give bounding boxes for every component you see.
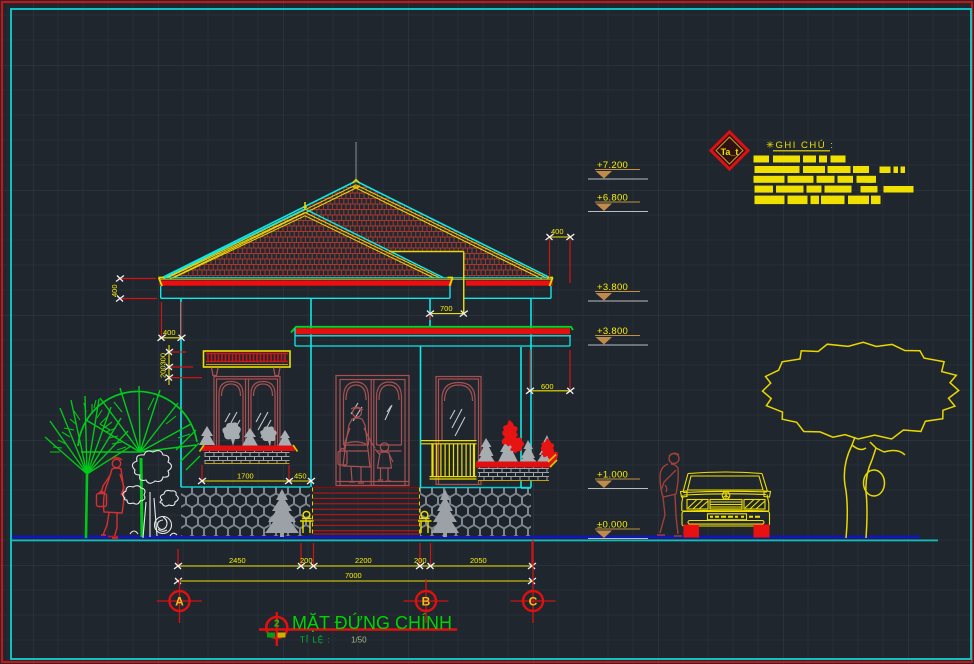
svg-text:400: 400 [110, 284, 119, 297]
svg-text:7000: 7000 [345, 571, 362, 580]
svg-text:200300: 200300 [159, 353, 168, 378]
svg-text:2450: 2450 [229, 556, 246, 565]
svg-text:2: 2 [274, 619, 280, 630]
svg-text:600: 600 [541, 382, 554, 391]
svg-text:400: 400 [551, 227, 564, 236]
svg-text:1/50: 1/50 [351, 636, 367, 645]
svg-text:450: 450 [294, 472, 307, 481]
svg-text:2200: 2200 [355, 556, 372, 565]
svg-text:B: B [422, 595, 431, 609]
svg-text:200: 200 [414, 556, 427, 565]
svg-text:A: A [175, 595, 184, 609]
svg-text:400: 400 [163, 328, 176, 337]
svg-text:1700: 1700 [237, 472, 254, 481]
svg-text:TỈ LỆ :: TỈ LỆ : [300, 636, 331, 645]
svg-text:MẶT ĐỨNG CHÍNH: MẶT ĐỨNG CHÍNH [292, 612, 452, 633]
svg-text:2050: 2050 [470, 556, 487, 565]
svg-text:✳GHI CHÚ :: ✳GHI CHÚ : [766, 140, 834, 151]
svg-text:C: C [529, 595, 538, 609]
svg-text:700: 700 [440, 304, 453, 313]
svg-text:Ta_t: Ta_t [721, 147, 739, 157]
svg-text:200: 200 [300, 556, 313, 565]
